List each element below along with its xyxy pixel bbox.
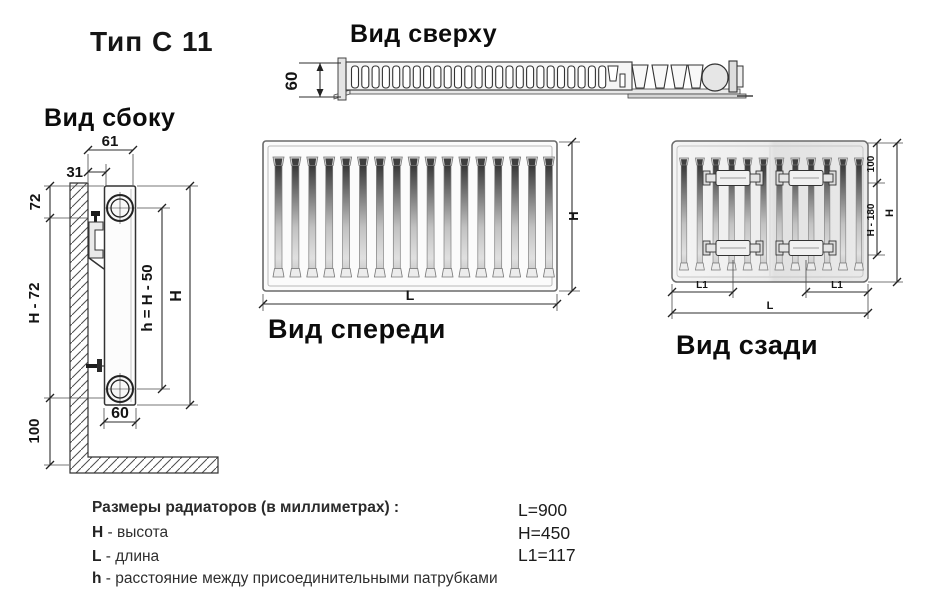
repeat-shape [372,66,379,88]
value-l1: L1=117 [518,544,576,567]
top-view-drawing: 60 [282,58,753,100]
repeat-shape [424,66,431,88]
repeat-shape [465,66,472,88]
dim-61-label: 61 [102,133,119,150]
dim-h-label: h = H - 50 [139,264,156,331]
dim-L1-left-label: L1 [696,280,708,291]
repeat-shape [516,66,523,88]
side-view-drawing: 61 31 72 H - 72 100 h = H - 50 H [26,133,218,473]
repeat-shape [413,66,420,88]
front-panel-grooves [273,157,554,277]
repeat-shape [568,66,575,88]
repeat-shape [558,66,565,88]
front-view-caption: Вид спереди [268,314,446,345]
dim-H-front-label: H [566,211,581,220]
top-wall-bracket [89,211,104,269]
repeat-shape [362,66,369,88]
repeat-shape [382,66,389,88]
repeat-shape [352,66,359,88]
legend-heading: Размеры радиаторов (в миллиметрах) : [92,499,399,517]
legend-desc-L: - длина [106,548,159,565]
repeat-shape [543,157,554,277]
legend-desc-H: - высота [108,524,169,541]
legend-key-H: H [92,524,103,541]
repeat-shape [527,157,538,277]
dimension-values: L=900 H=450 L1=117 [518,499,576,567]
dim-H-back-label: H [884,209,896,217]
back-view-caption: Вид сзади [676,330,818,361]
dim-72-label: 72 [27,194,44,211]
dim-60-label: 60 [111,405,129,422]
dim-L1-right-label: L1 [831,280,843,291]
front-view-drawing: H L [259,138,581,311]
legend-desc-h: - расстояние между присоединительными па… [106,570,498,587]
repeat-shape [403,66,410,88]
back-view-drawing: 100 H - 180 H L1 L1 L [668,139,903,319]
repeat-shape [496,66,503,88]
radiator-spec-diagram: 60 [0,0,930,611]
dim-L-front-label: L [406,287,415,303]
dim-L-back-label: L [767,300,774,312]
top-view-caption: Вид сверху [350,20,497,49]
dim-H-side-label: H [168,290,185,302]
legend-item-L: L - длина [92,548,159,566]
top-view-slots [352,66,606,88]
legend-item-H: H - высота [92,524,168,542]
repeat-shape [547,66,554,88]
repeat-shape [444,66,451,88]
legend-item-h: h - расстояние между присоединительными … [92,570,498,588]
dim-100-back-label: 100 [866,155,877,172]
repeat-shape [393,66,400,88]
repeat-shape [434,66,441,88]
bottom-wall-bracket [86,359,105,372]
dim-h72-label: H - 72 [26,283,43,324]
repeat-shape [506,66,513,88]
value-length: L=900 [518,499,576,522]
repeat-shape [475,66,482,88]
repeat-shape [578,66,585,88]
side-view-caption: Вид сбоку [44,104,175,133]
diagram-title: Тип С 11 [90,26,214,58]
top-depth-label: 60 [282,72,301,91]
dim-31-label: 31 [66,164,83,181]
legend-key-h: h [92,570,101,587]
dim-100-label: 100 [26,418,43,443]
dim-h180-label: H - 180 [866,203,877,236]
diagram-canvas: 60 [0,0,930,611]
top-view-depth-dim: 60 [282,63,341,97]
repeat-shape [485,66,492,88]
repeat-shape [455,66,462,88]
repeat-shape [599,66,606,88]
repeat-shape [527,66,534,88]
repeat-shape [537,66,544,88]
value-height: H=450 [518,522,576,545]
repeat-shape [588,66,595,88]
legend-key-L: L [92,548,101,565]
